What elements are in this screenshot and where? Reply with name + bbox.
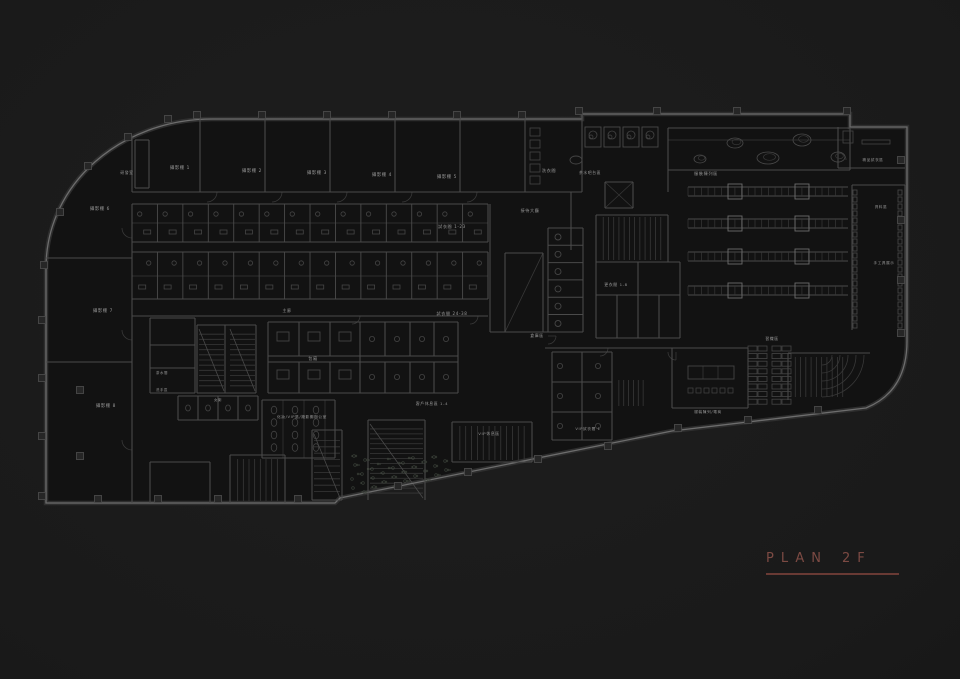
column-marker [39,433,46,440]
floor-layer [46,114,907,503]
column-marker [155,496,162,503]
column-marker [77,453,84,460]
room-label: 接待大廳 [521,207,540,213]
column-marker [898,330,905,337]
room-label: 攝影棚 7 [93,307,113,314]
column-marker [77,387,84,394]
column-marker [898,157,905,164]
column-marker [465,469,472,476]
generated-plan-layers: 研發室攝影棚 1攝影棚 2攝影棚 3攝影棚 4攝影棚 5洗衣間茶水吧台區服裝陳列… [39,108,908,504]
room-label: 客戶休息區 1-4 [416,401,448,406]
room-label: 手工具展示 [874,260,895,265]
room-label: 服裝陳列區 [694,170,718,177]
column-marker [576,108,583,115]
room-label: 茶水吧台區 [579,170,601,175]
floorplan-page: 研發室攝影棚 1攝影棚 2攝影棚 3攝影棚 4攝影棚 5洗衣間茶水吧台區服裝陳列… [0,0,960,679]
column-marker [654,108,661,115]
plan-title-text: PLAN [766,551,828,566]
column-marker [898,217,905,224]
column-marker [745,417,752,424]
column-marker [454,112,461,119]
column-marker [165,116,172,123]
room-label: 女廁 [214,397,222,402]
room-label: 化妝/VIP區/攝影棚辦公室 [277,414,327,419]
room-label: 攝影棚 8 [96,402,116,409]
room-label: 攝影棚 2 [242,167,262,174]
room-label: 包廂 [308,355,317,361]
column-marker [519,112,526,119]
column-marker [295,496,302,503]
column-marker [844,108,851,115]
column-marker [535,456,542,463]
room-label: 倉庫區 [530,333,543,338]
room-label: 服裝陳列/電商 [694,409,722,414]
column-marker [85,163,92,170]
column-marker [57,209,64,216]
room-label: VIP試衣間 1 [575,426,600,431]
column-marker [675,425,682,432]
column-marker [389,112,396,119]
column-marker [898,277,905,284]
column-marker [605,443,612,450]
room-label: VIP休息區 [478,431,499,436]
column-marker [215,496,222,503]
column-marker [39,375,46,382]
floorplan-drawing: 研發室攝影棚 1攝影棚 2攝影棚 3攝影棚 4攝影棚 5洗衣間茶水吧台區服裝陳列… [0,0,960,679]
room-label: 研發室 [120,170,133,175]
room-label: 試衣間 1-23 [438,223,466,229]
column-marker [39,493,46,500]
room-label: 習織區 [765,336,778,341]
room-label: 試衣間 24-38 [437,310,468,316]
column-marker [395,483,402,490]
room-label: 攝影棚 4 [372,171,392,178]
plan-title: PLAN 2F [766,551,899,575]
room-label: 攝影棚 6 [90,205,110,212]
room-label: 茶水間 [156,370,168,375]
title-underline [766,573,899,575]
room-label: 攝影棚 1 [170,164,190,171]
plan-floor-text: 2F [842,551,872,566]
room-label: 洗手區 [156,387,168,392]
room-label: 攝影棚 3 [307,169,327,176]
column-marker [95,496,102,503]
room-label: 資料區 [875,204,888,209]
room-label: 攝影棚 5 [437,173,457,180]
room-label: 更衣間 1-8 [604,282,627,287]
room-label: 主廊 [283,308,292,313]
column-marker [815,407,822,414]
column-marker [259,112,266,119]
column-marker [125,134,132,141]
column-marker [734,108,741,115]
column-marker [324,112,331,119]
room-label: 洗衣間 [542,167,556,174]
column-marker [39,317,46,324]
room-label: 精品試衣區 [863,157,884,162]
column-marker [41,262,48,269]
column-marker [194,112,201,119]
